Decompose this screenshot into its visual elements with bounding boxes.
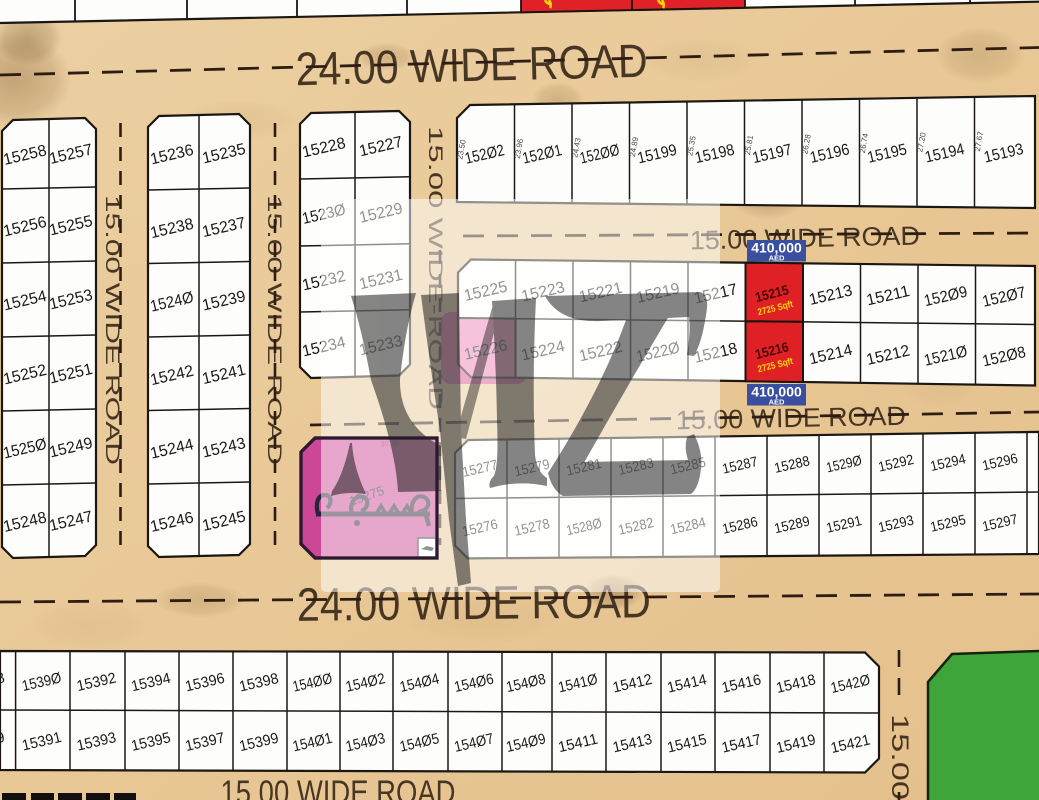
svg-text:15.00: 15.00 — [886, 714, 913, 800]
svg-text:15.00 WIDE ROAD: 15.00 WIDE ROAD — [221, 774, 456, 800]
svg-text:AED: AED — [769, 254, 785, 263]
svg-text:15.00 WIDE ROAD: 15.00 WIDE ROAD — [101, 195, 122, 465]
svg-text:15.00 WIDE ROAD: 15.00 WIDE ROAD — [263, 195, 284, 465]
